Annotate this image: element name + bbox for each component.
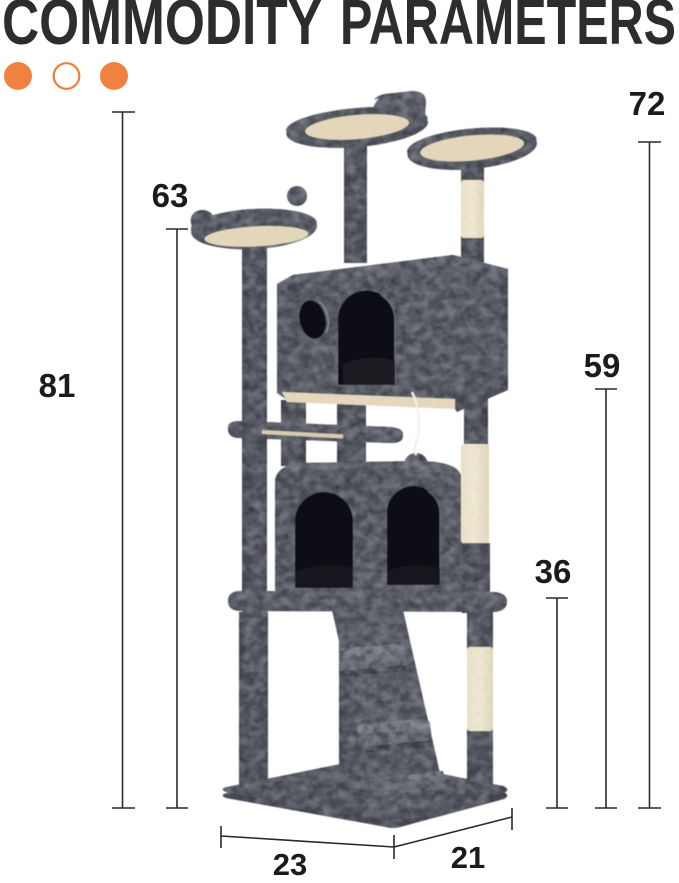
svg-text:81: 81 [39, 367, 76, 404]
svg-text:59: 59 [584, 347, 621, 384]
svg-text:23: 23 [273, 847, 307, 878]
svg-text:63: 63 [152, 177, 189, 214]
svg-text:PARAMETERS: PARAMETERS [340, 0, 676, 58]
svg-text:36: 36 [535, 553, 572, 590]
svg-text:72: 72 [629, 85, 666, 122]
svg-text:COMMODITY: COMMODITY [2, 0, 322, 58]
svg-text:21: 21 [451, 840, 485, 875]
